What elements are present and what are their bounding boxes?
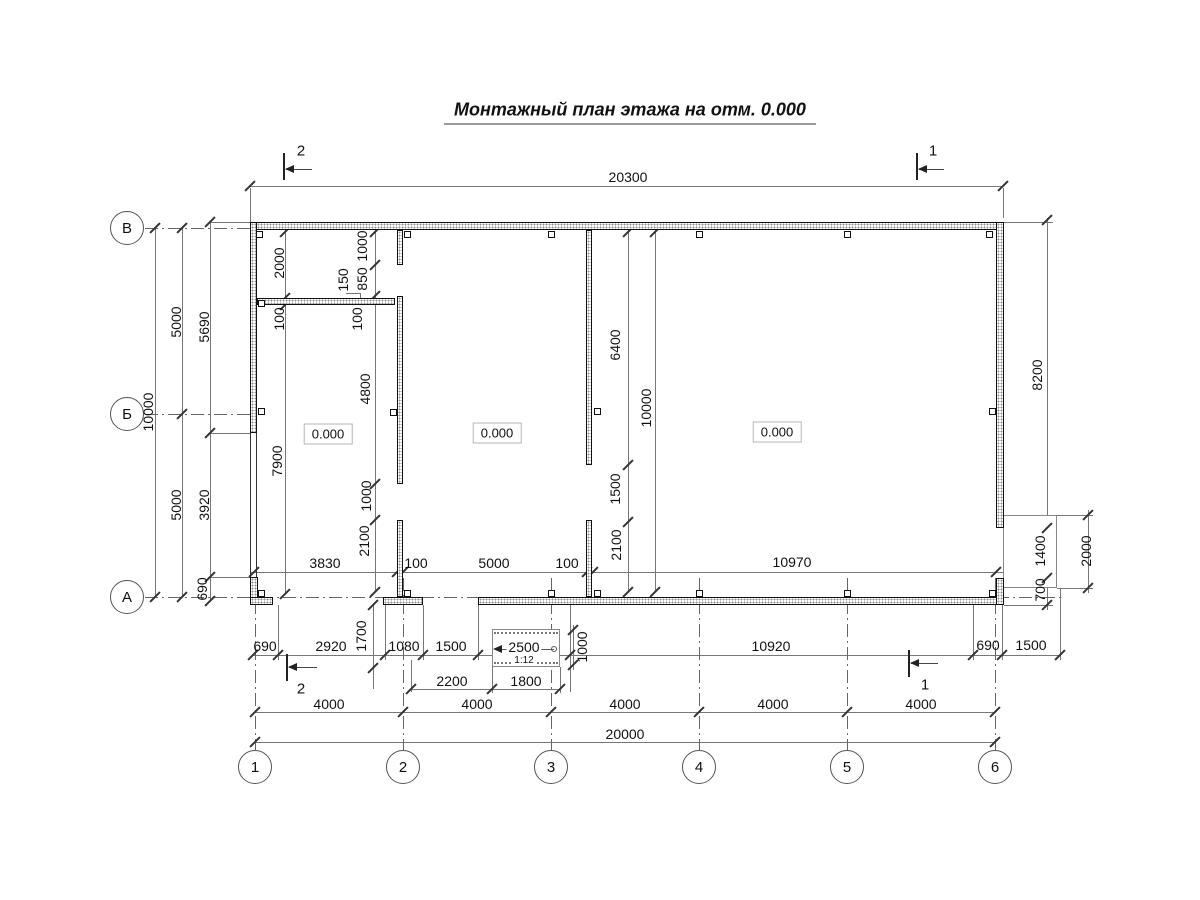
dim-w1-opening: 1000 <box>359 480 373 511</box>
dim-bay2: 5000 <box>478 556 509 570</box>
dim-room1-height: 7900 <box>270 445 284 476</box>
dimension-line <box>210 433 250 434</box>
wall-interior1-stub <box>397 230 403 265</box>
dimension-line <box>255 742 995 743</box>
panel-joint-mark <box>258 590 265 597</box>
wall-bottom-middle-piece <box>383 597 423 605</box>
dimension-line <box>210 222 250 223</box>
dimension-line <box>250 572 1004 573</box>
dimension-line <box>250 186 1003 187</box>
panel-joint-mark <box>548 231 555 238</box>
axis-col-1: 1 <box>238 750 272 784</box>
dim-w2-lower: 2100 <box>609 529 623 560</box>
dim-b-690-left: 690 <box>253 639 276 653</box>
dim-b-690-right: 690 <box>976 638 999 652</box>
dim-b-1500: 1500 <box>435 639 466 653</box>
dim-b-1500-right: 1500 <box>1015 638 1046 652</box>
dim-b-1700: 1700 <box>354 620 368 651</box>
extension-line <box>375 230 376 592</box>
axis-col-2-label: 2 <box>399 759 407 776</box>
extension-line <box>655 230 656 592</box>
dimension-line <box>253 655 1060 656</box>
axis-col-5: 5 <box>830 750 864 784</box>
dim-w1-mid: 4800 <box>358 373 372 404</box>
section1-bottom-label: 1 <box>921 677 929 694</box>
wall-interior2-upper <box>586 230 592 465</box>
axis-line-horizontal <box>145 228 252 229</box>
dim-grid-span-1: 4000 <box>313 697 344 711</box>
wall-interior1-lower <box>397 520 403 597</box>
dim-b-1000: 1000 <box>575 631 589 662</box>
dim-w1-thk: 100 <box>404 556 427 570</box>
elevation-mark-room3: 0.000 <box>753 422 802 443</box>
axis-line-horizontal <box>145 414 259 415</box>
axis-row-V: В <box>110 211 144 245</box>
left-wall-window-opening <box>250 433 257 577</box>
dim-right-wall: 8200 <box>1030 359 1044 390</box>
axis-row-A-label: А <box>122 589 132 606</box>
section1-top-label: 1 <box>929 143 937 160</box>
dim-b-10920: 10920 <box>752 639 791 653</box>
dim-porch-w1: 2200 <box>436 674 467 688</box>
dim-b-2920: 2920 <box>315 639 346 653</box>
wall-interior1-middle <box>397 296 403 484</box>
dim-w2-thk: 100 <box>555 556 578 570</box>
extension-line <box>250 188 251 222</box>
axis-col-3-label: 3 <box>547 759 555 776</box>
dim-partition-thk: 100 <box>272 307 286 330</box>
axis-col-4-label: 4 <box>695 759 703 776</box>
panel-joint-mark <box>844 590 851 597</box>
wall-right-upper <box>996 222 1004 528</box>
panel-joint-mark <box>256 231 263 238</box>
elevation-mark-room2: 0.000 <box>473 423 522 444</box>
extension-line <box>1060 588 1061 660</box>
ramp-direction-origin-icon <box>551 646 557 652</box>
section1-top-arrow-icon <box>918 165 927 173</box>
dim-w2-upper: 6400 <box>608 329 622 360</box>
ramp-dot-row-top <box>494 632 558 634</box>
ramp-slope-label: 1:12 <box>512 656 535 666</box>
wall-bottom-left-piece <box>250 597 273 605</box>
wall-partition-room1 <box>257 298 395 305</box>
axis-row-V-label: В <box>122 220 132 237</box>
extension-line <box>1003 188 1004 218</box>
drawing-title: Монтажный план этажа на отм. 0.000 <box>444 100 816 125</box>
panel-joint-mark <box>989 408 996 415</box>
extension-line <box>628 230 629 592</box>
floor-plan-sheet: Монтажный план этажа на отм. 0.000 2 1 2… <box>0 0 1200 900</box>
axis-row-B: Б <box>110 397 144 431</box>
axis-col-3: 3 <box>534 750 568 784</box>
dim-grid-span-2: 4000 <box>461 697 492 711</box>
panel-joint-mark <box>594 408 601 415</box>
panel-joint-mark <box>986 231 993 238</box>
panel-joint-mark <box>548 590 555 597</box>
elevation-mark-room1: 0.000 <box>304 424 353 445</box>
dim-left-span-bottom: 5000 <box>169 489 183 520</box>
extension-line <box>210 222 211 601</box>
dim-right-door: 1400 <box>1033 535 1047 566</box>
dim-b-1080: 1080 <box>388 639 419 653</box>
dim-w1-lower: 2100 <box>357 525 371 556</box>
axis-col-4: 4 <box>682 750 716 784</box>
dimension-line <box>255 712 995 713</box>
panel-joint-mark <box>258 408 265 415</box>
panel-joint-mark <box>390 409 397 416</box>
dim-w1-thk-v: 100 <box>350 307 364 330</box>
panel-joint-mark <box>696 231 703 238</box>
extension-line <box>570 605 571 692</box>
dim-right-pier: 700 <box>1033 578 1047 601</box>
dim-room1-depth: 2000 <box>272 247 286 278</box>
section2-top-label: 2 <box>297 143 305 160</box>
dim-left-span-top: 5000 <box>169 306 183 337</box>
section1-bottom-arrow-icon <box>910 659 919 667</box>
dim-porch-w2: 1800 <box>510 674 541 688</box>
axis-row-A: А <box>110 580 144 614</box>
dim-left-window: 3920 <box>197 489 211 520</box>
dim-porch-height: 2000 <box>1079 535 1093 566</box>
dim-grid-span-5: 4000 <box>905 697 936 711</box>
axis-col-6-label: 6 <box>991 759 999 776</box>
dim-grid-total: 20000 <box>606 727 645 741</box>
dim-interior-height: 10000 <box>639 389 653 428</box>
dimension-line <box>346 293 360 294</box>
wall-right-lower-pier <box>996 578 1004 605</box>
axis-col-6: 6 <box>978 750 1012 784</box>
dim-overall-top: 20300 <box>609 170 648 184</box>
dimension-line <box>411 689 560 690</box>
axis-row-B-label: Б <box>122 406 132 423</box>
dim-left-overall: 10000 <box>141 393 155 432</box>
wall-bottom-right-piece <box>478 597 1004 605</box>
panel-joint-mark <box>404 590 411 597</box>
dim-bay1: 3830 <box>309 556 340 570</box>
dim-w1-offset: 150 <box>336 268 350 291</box>
dim-left-wall-bottom: 690 <box>195 577 209 600</box>
dim-bay3: 10970 <box>773 555 812 569</box>
section2-bottom-arrow-icon <box>288 663 297 671</box>
dim-ramp-length: 2500 <box>506 640 541 654</box>
dim-w1-stub: 1000 <box>355 230 369 261</box>
wall-left-upper <box>250 222 257 433</box>
panel-joint-mark <box>989 590 996 597</box>
dim-grid-span-4: 4000 <box>757 697 788 711</box>
panel-joint-mark <box>404 231 411 238</box>
wall-interior2-lower <box>586 520 592 597</box>
dimension-line <box>210 577 253 578</box>
section2-top-arrow-icon <box>285 165 294 173</box>
axis-col-1-label: 1 <box>251 759 259 776</box>
dim-w1-door: 850 <box>355 267 369 290</box>
extension-line <box>285 230 286 594</box>
wall-top <box>250 222 1004 230</box>
dim-left-wall-top: 5690 <box>197 311 211 342</box>
panel-joint-mark <box>258 300 265 307</box>
panel-joint-mark <box>696 590 703 597</box>
axis-col-5-label: 5 <box>843 759 851 776</box>
extension-line <box>373 605 374 689</box>
axis-col-2: 2 <box>386 750 420 784</box>
panel-joint-mark <box>594 590 601 597</box>
section2-bottom-label: 2 <box>297 681 305 698</box>
ramp-direction-arrow-icon <box>493 645 502 653</box>
dim-grid-span-3: 4000 <box>609 697 640 711</box>
dim-w2-opening: 1500 <box>608 473 622 504</box>
panel-joint-mark <box>844 231 851 238</box>
